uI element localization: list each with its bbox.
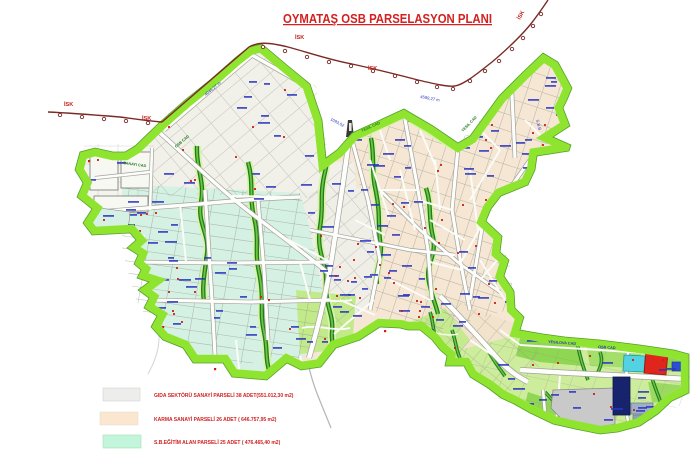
svg-text:KARMA SANAYİ PARSELİ 26 ADET (: KARMA SANAYİ PARSELİ 26 ADET ( 646.757,9…	[154, 416, 277, 423]
svg-text:İSK: İSK	[142, 115, 151, 122]
svg-text:GIDA SEKTÖRÜ SANAYİ PARSELİ 38: GIDA SEKTÖRÜ SANAYİ PARSELİ 38 ADET(551.…	[154, 392, 294, 399]
svg-text:OYMATAŞ OSB PARSELASYON PLANI: OYMATAŞ OSB PARSELASYON PLANI	[283, 12, 492, 26]
svg-text:S.B.EĞİTİM ALAN PARSELİ 25 AD: S.B.EĞİTİM ALAN PARSELİ 25 ADET ( 476.46…	[154, 438, 281, 446]
svg-text:İSK: İSK	[368, 65, 377, 72]
svg-text:İSK: İSK	[295, 34, 304, 41]
svg-text:İSK: İSK	[64, 101, 73, 108]
